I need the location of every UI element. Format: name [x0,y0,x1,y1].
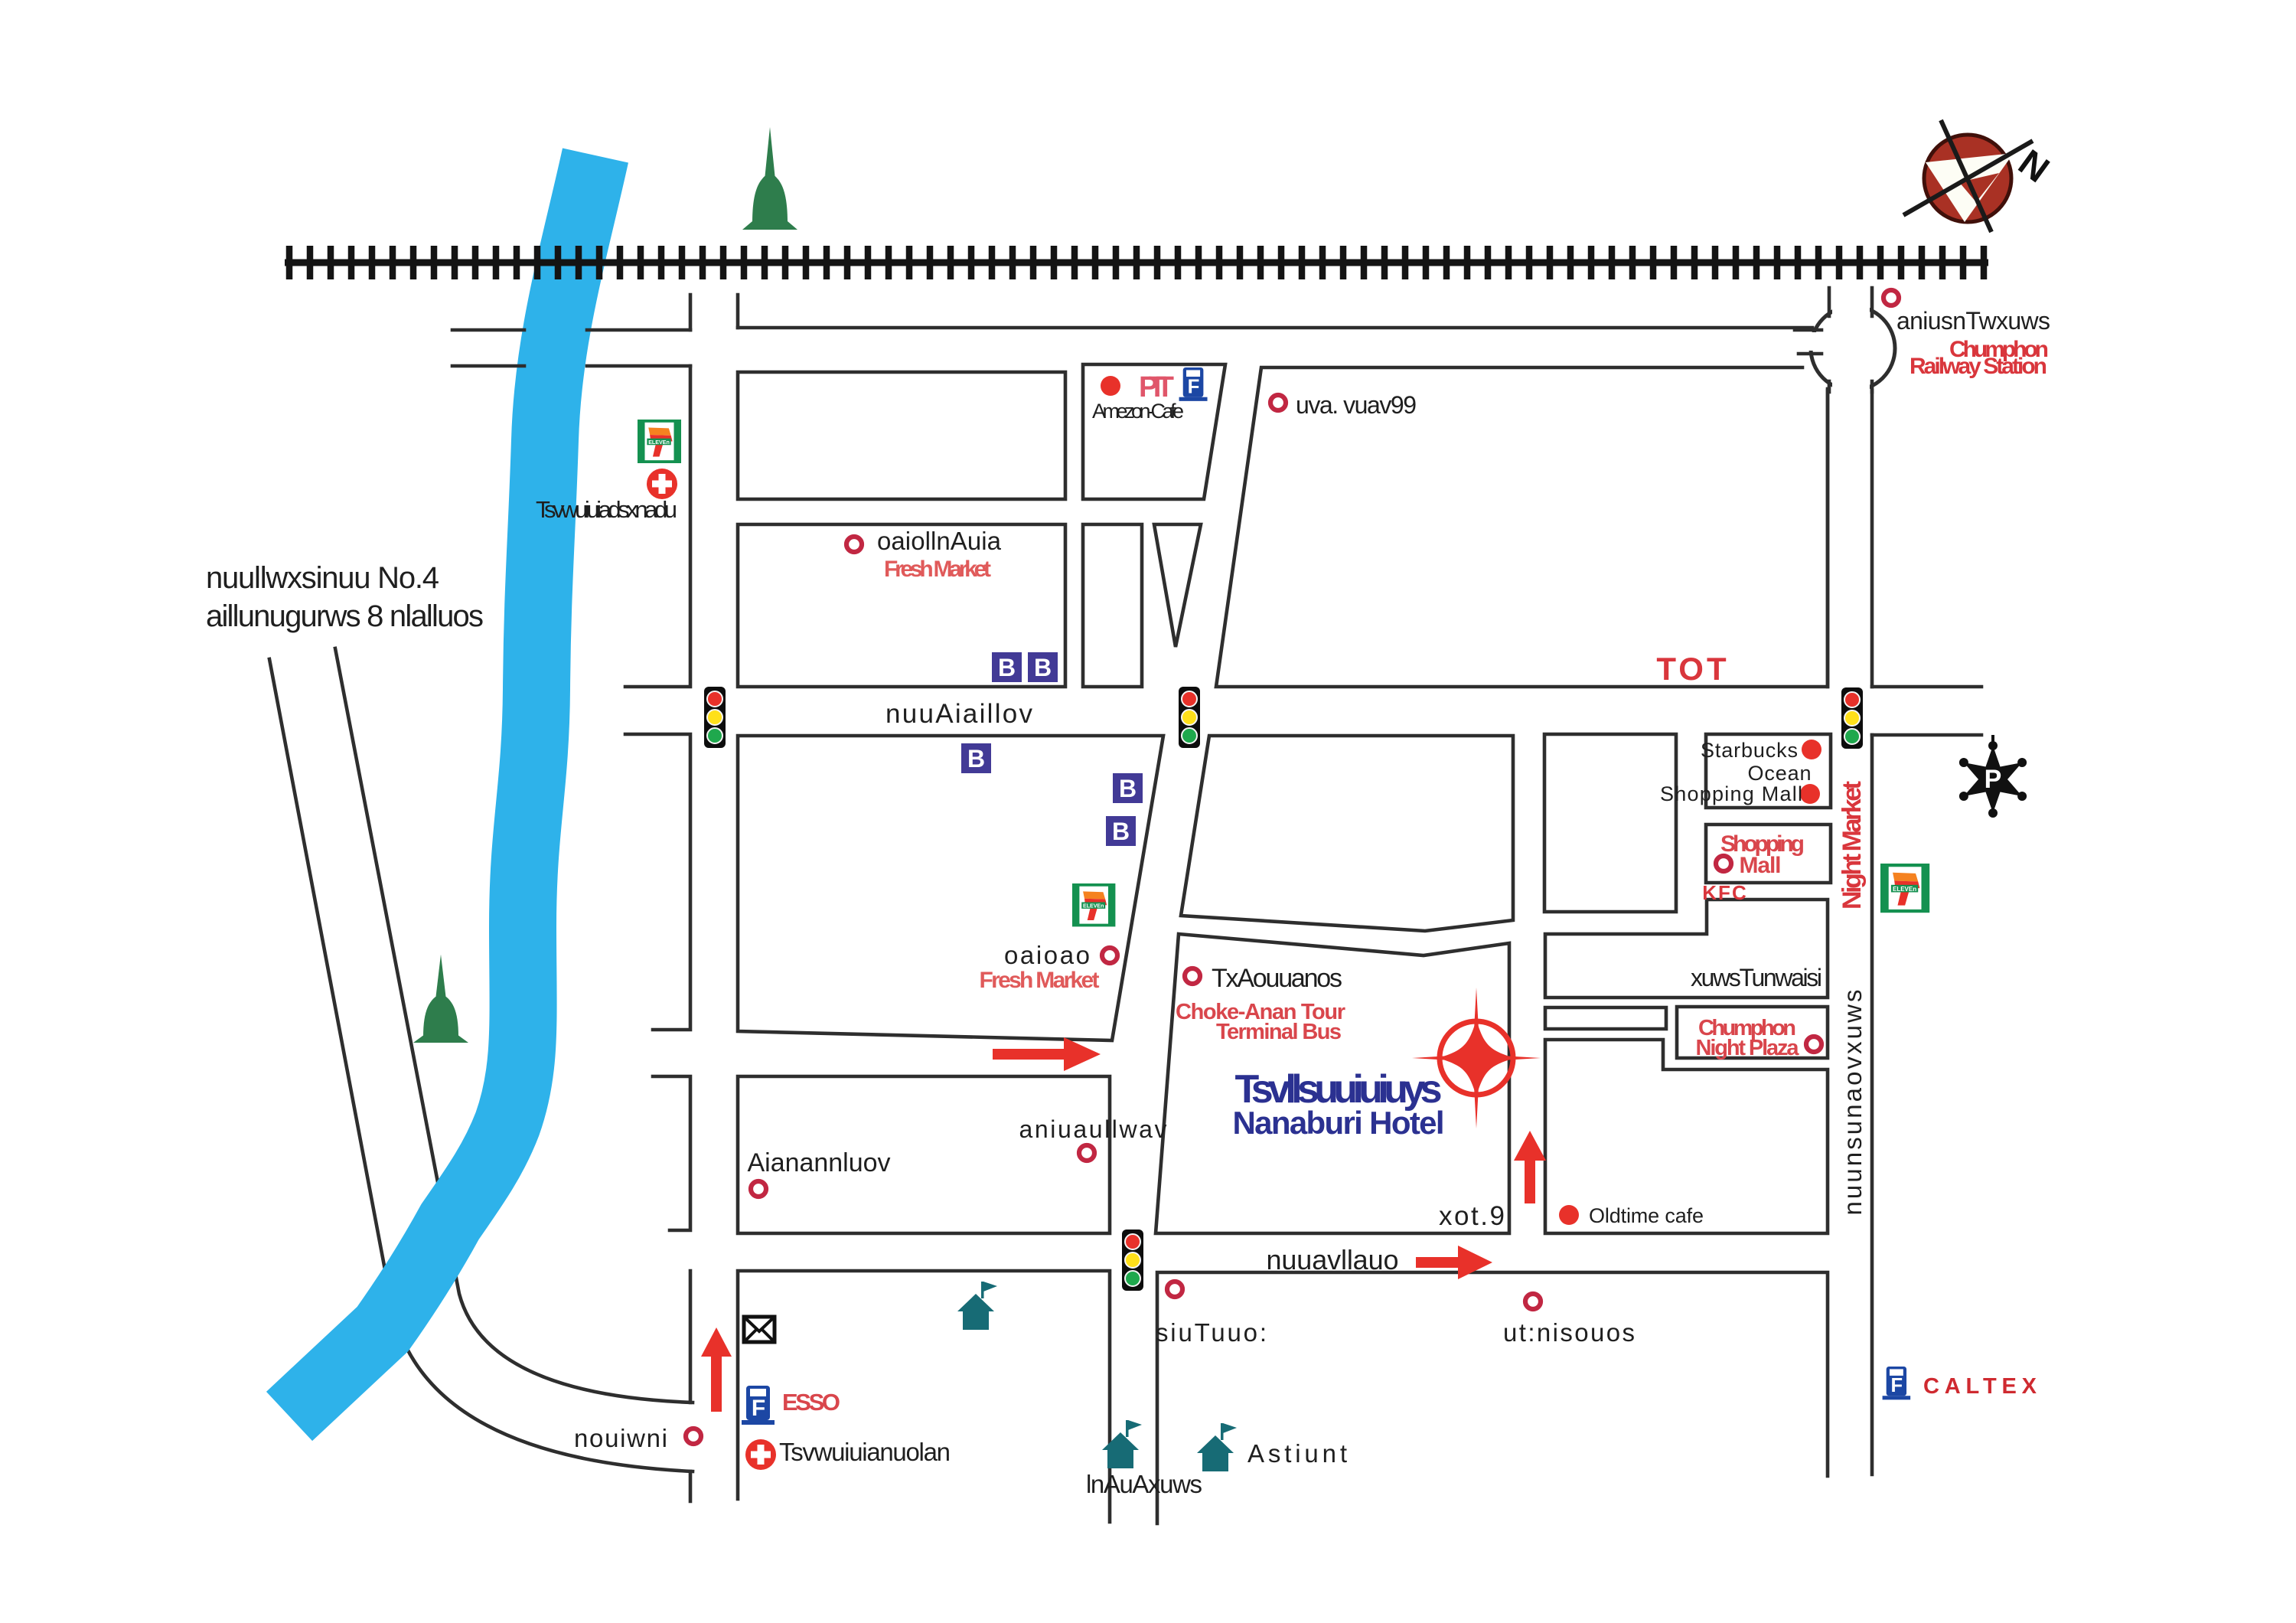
svg-text:siuTuuo:: siuTuuo: [1156,1318,1267,1347]
svg-text:xot.9: xot.9 [1439,1201,1505,1231]
svg-text:ESSO: ESSO [782,1389,842,1416]
svg-text:TOT: TOT [1656,651,1729,687]
svg-text:nouiwni: nouiwni [574,1424,667,1452]
svg-text:aillunugurws 8 nlalluos: aillunugurws 8 nlalluos [206,599,484,633]
svg-text:lnAuAxuws: lnAuAxuws [1086,1470,1202,1498]
svg-text:nuuavllauo: nuuavllauo [1267,1244,1399,1275]
svg-text:uva. vuav99: uva. vuav99 [1296,391,1417,419]
svg-text:Fresh Market: Fresh Market [980,968,1100,993]
svg-text:Aianannluov: Aianannluov [748,1148,891,1177]
svg-text:Night Market: Night Market [1838,781,1867,909]
svg-text:xuwsTunwaisi: xuwsTunwaisi [1691,964,1822,991]
svg-text:aniuaullwav: aniuaullwav [1019,1115,1167,1143]
svg-text:Starbucks: Starbucks [1701,739,1798,762]
svg-text:Night Plaza: Night Plaza [1696,1036,1800,1060]
svg-text:ut:nisouos: ut:nisouos [1503,1318,1635,1347]
svg-text:TxAouuanos: TxAouuanos [1212,964,1342,993]
svg-text:Tsvwuiuianuolan: Tsvwuiuianuolan [779,1438,951,1466]
svg-text:nuullwxsinuu No.4: nuullwxsinuu No.4 [206,561,439,595]
svg-text:Amezon-Cafe: Amezon-Cafe [1092,400,1184,423]
svg-text:aniusnTwxuws: aniusnTwxuws [1896,307,2050,335]
svg-text:KFC: KFC [1702,881,1747,904]
svg-text:oaiollnAuia: oaiollnAuia [877,527,1002,555]
svg-text:Shopping Mall: Shopping Mall [1660,782,1802,805]
svg-text:Fresh Market: Fresh Market [884,557,991,582]
svg-text:Oldtime cafe: Oldtime cafe [1589,1204,1704,1227]
svg-text:Mall: Mall [1740,853,1782,878]
svg-text:P: P [1985,765,2002,794]
svg-text:Railway Station: Railway Station [1910,354,2047,379]
svg-text:Astiunt: Astiunt [1247,1439,1347,1468]
svg-text:nuunsunaovxuws: nuunsunaovxuws [1838,990,1867,1216]
svg-text:Terminal Bus: Terminal Bus [1216,1020,1342,1044]
svg-text:nuuAiaillov: nuuAiaillov [885,699,1033,729]
svg-text:Nanaburi Hotel: Nanaburi Hotel [1233,1105,1445,1141]
svg-text:Ocean: Ocean [1748,762,1812,785]
svg-text:oaioao: oaioao [1004,941,1090,969]
svg-text:PTT: PTT [1139,371,1174,403]
svg-text:Tsvwuiuiadsxnadu: Tsvwuiuiadsxnadu [536,496,677,523]
